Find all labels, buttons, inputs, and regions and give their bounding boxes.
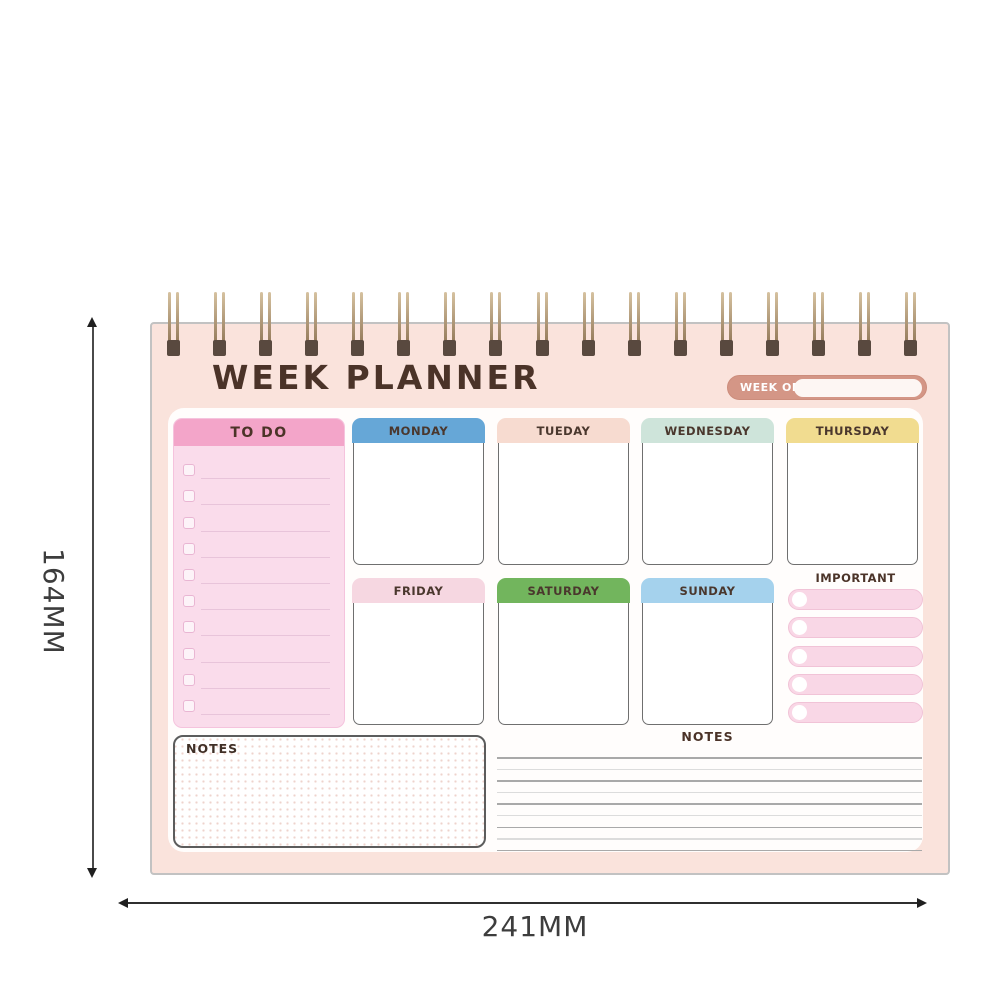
- note-line: [497, 780, 922, 782]
- notes-dotted-box[interactable]: NOTES: [173, 735, 486, 848]
- page-title: WEEK PLANNER: [212, 358, 541, 397]
- spiral-binding-loop: [304, 292, 319, 356]
- spiral-binding: [166, 292, 918, 356]
- todo-checkbox[interactable]: [183, 674, 195, 686]
- todo-row[interactable]: [183, 693, 330, 719]
- todo-underline: [201, 583, 330, 584]
- todo-header: TO DO: [174, 419, 344, 446]
- todo-underline: [201, 635, 330, 636]
- todo-checkbox[interactable]: [183, 700, 195, 712]
- todo-underline: [201, 688, 330, 689]
- day-body-monday[interactable]: [353, 443, 484, 565]
- important-row[interactable]: [788, 702, 923, 723]
- important-header: IMPORTANT: [788, 571, 923, 585]
- spiral-binding-loop: [581, 292, 596, 356]
- important-row[interactable]: [788, 617, 923, 638]
- day-box-saturday: SATURDAY: [497, 578, 630, 725]
- day-box-friday: FRIDAY: [352, 578, 485, 725]
- todo-row[interactable]: [183, 457, 330, 483]
- todo-underline: [201, 504, 330, 505]
- note-line: [497, 757, 922, 759]
- arrow-down-icon: [87, 868, 97, 878]
- day-box-wednesday: WEDNESDAY: [641, 418, 774, 565]
- todo-row[interactable]: [183, 667, 330, 693]
- day-header-wednesday: WEDNESDAY: [641, 418, 774, 443]
- height-dimension-label: 164MM: [37, 548, 70, 655]
- note-line: [497, 827, 922, 829]
- week-of-box: WEEK OF:: [727, 375, 927, 400]
- todo-underline: [201, 531, 330, 532]
- todo-row[interactable]: [183, 588, 330, 614]
- todo-row[interactable]: [183, 536, 330, 562]
- todo-underline: [201, 478, 330, 479]
- todo-checkbox[interactable]: [183, 621, 195, 633]
- day-box-thursday: THURSDAY: [786, 418, 919, 565]
- week-of-input[interactable]: [794, 379, 922, 397]
- todo-row[interactable]: [183, 640, 330, 666]
- day-body-friday[interactable]: [353, 603, 484, 725]
- todo-list: [183, 457, 330, 719]
- day-box-monday: MONDAY: [352, 418, 485, 565]
- note-line: [497, 850, 922, 852]
- todo-checkbox[interactable]: [183, 464, 195, 476]
- todo-row[interactable]: [183, 562, 330, 588]
- day-box-sunday: SUNDAY: [641, 578, 774, 725]
- notes-right-header: NOTES: [640, 729, 775, 744]
- todo-underline: [201, 557, 330, 558]
- day-body-thursday[interactable]: [787, 443, 918, 565]
- todo-checkbox[interactable]: [183, 517, 195, 529]
- width-dimension-label: 241MM: [430, 910, 640, 943]
- day-body-saturday[interactable]: [498, 603, 629, 725]
- arrow-up-icon: [87, 317, 97, 327]
- todo-checkbox[interactable]: [183, 490, 195, 502]
- todo-row[interactable]: [183, 483, 330, 509]
- day-header-monday: MONDAY: [352, 418, 485, 443]
- todo-checkbox[interactable]: [183, 543, 195, 555]
- day-header-friday: FRIDAY: [352, 578, 485, 603]
- spiral-binding-loop: [258, 292, 273, 356]
- spiral-binding-loop: [811, 292, 826, 356]
- note-line: [497, 803, 922, 805]
- todo-underline: [201, 609, 330, 610]
- spiral-binding-loop: [673, 292, 688, 356]
- day-body-sunday[interactable]: [642, 603, 773, 725]
- spiral-binding-loop: [166, 292, 181, 356]
- day-box-tuesday: TUEDAY: [497, 418, 630, 565]
- width-dimension-line: [127, 902, 919, 904]
- important-row[interactable]: [788, 646, 923, 667]
- todo-row[interactable]: [183, 614, 330, 640]
- note-line: [497, 769, 922, 771]
- important-row[interactable]: [788, 589, 923, 610]
- spiral-binding-loop: [765, 292, 780, 356]
- spiral-binding-loop: [719, 292, 734, 356]
- day-header-saturday: SATURDAY: [497, 578, 630, 603]
- note-line: [497, 792, 922, 794]
- todo-underline: [201, 714, 330, 715]
- spiral-binding-loop: [212, 292, 227, 356]
- todo-checkbox[interactable]: [183, 648, 195, 660]
- todo-checkbox[interactable]: [183, 595, 195, 607]
- spiral-binding-loop: [857, 292, 872, 356]
- spiral-binding-loop: [396, 292, 411, 356]
- spiral-binding-loop: [488, 292, 503, 356]
- todo-section: TO DO: [173, 418, 345, 728]
- spiral-binding-loop: [903, 292, 918, 356]
- notes-lined-area[interactable]: [497, 757, 922, 861]
- spiral-binding-loop: [442, 292, 457, 356]
- day-body-wednesday[interactable]: [642, 443, 773, 565]
- day-header-tuesday: TUEDAY: [497, 418, 630, 443]
- note-line: [497, 815, 922, 817]
- spiral-binding-loop: [350, 292, 365, 356]
- height-dimension-line: [92, 326, 94, 871]
- day-header-thursday: THURSDAY: [786, 418, 919, 443]
- spiral-binding-loop: [535, 292, 550, 356]
- arrow-left-icon: [118, 898, 128, 908]
- product-image: 164MM 241MM WEEK PLANNER WEEK OF: TO DO: [0, 0, 1000, 1000]
- arrow-right-icon: [917, 898, 927, 908]
- notes-left-header: NOTES: [186, 741, 238, 756]
- spiral-binding-loop: [627, 292, 642, 356]
- day-header-sunday: SUNDAY: [641, 578, 774, 603]
- todo-checkbox[interactable]: [183, 569, 195, 581]
- important-row[interactable]: [788, 674, 923, 695]
- todo-row[interactable]: [183, 509, 330, 535]
- todo-underline: [201, 662, 330, 663]
- note-line: [497, 838, 922, 840]
- day-body-tuesday[interactable]: [498, 443, 629, 565]
